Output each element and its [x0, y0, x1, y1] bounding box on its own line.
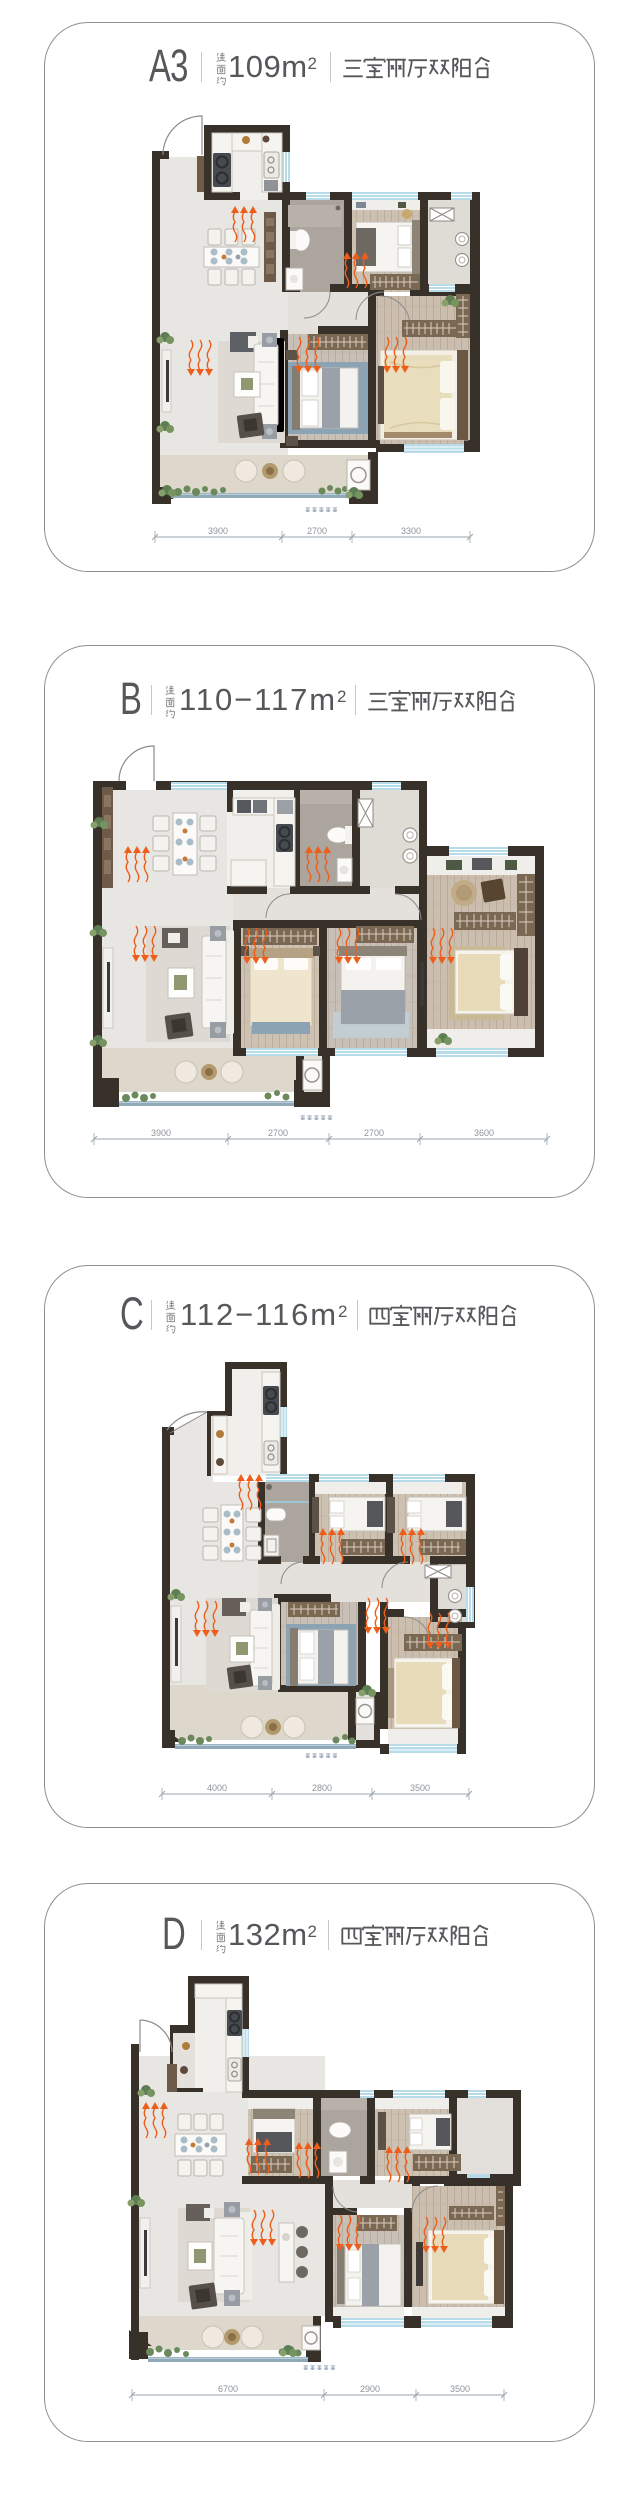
svg-text:3600: 3600 [474, 1128, 494, 1138]
svg-text:2800: 2800 [312, 1783, 332, 1793]
svg-text:3500: 3500 [410, 1783, 430, 1793]
svg-text:2900: 2900 [360, 2384, 380, 2394]
svg-text:3500: 3500 [450, 2384, 470, 2394]
svg-text:2700: 2700 [364, 1128, 384, 1138]
svg-text:3900: 3900 [151, 1128, 171, 1138]
svg-text:3900: 3900 [208, 526, 228, 536]
svg-text:4000: 4000 [207, 1783, 227, 1793]
svg-text:3300: 3300 [401, 526, 421, 536]
svg-text:2700: 2700 [307, 526, 327, 536]
svg-text:2700: 2700 [268, 1128, 288, 1138]
svg-text:6700: 6700 [218, 2384, 238, 2394]
